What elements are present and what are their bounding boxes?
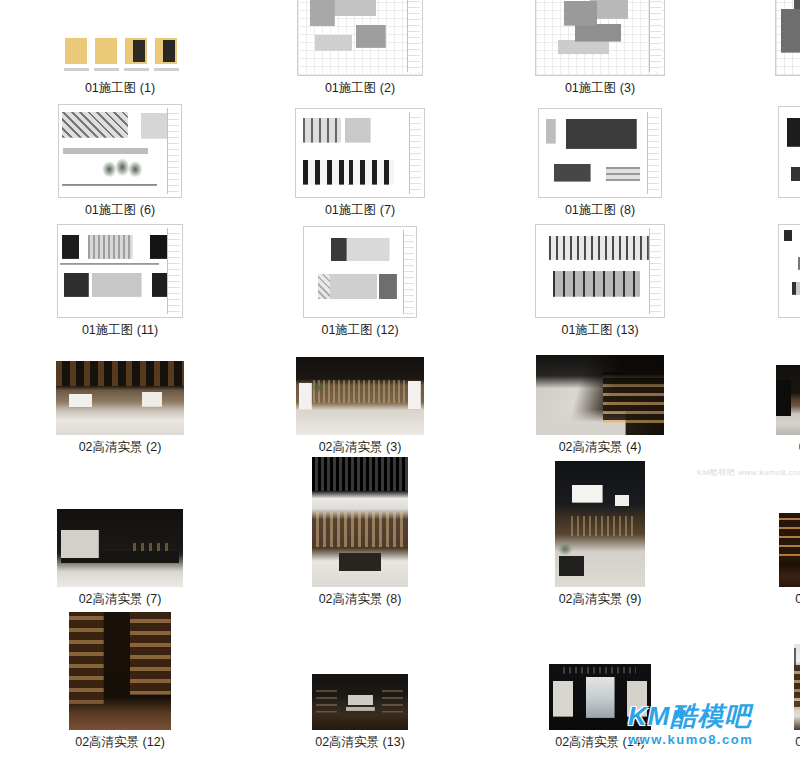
thumbnail-photo[interactable]: [296, 357, 424, 435]
file-label: 02高清实景 (7): [79, 592, 162, 607]
thumbnail-photo[interactable]: [56, 361, 184, 435]
file-label: 01施工图 (12): [321, 323, 398, 338]
file-item[interactable]: 01施工图 (7): [280, 129, 440, 219]
file-item[interactable]: 01施工图 (6): [40, 129, 200, 219]
file-label: 01施工图 (2): [325, 81, 395, 96]
file-label: 01施工图 (1): [85, 81, 155, 96]
file-label: 01施工图 (6): [85, 203, 155, 218]
file-label: 01施工图 (7): [325, 203, 395, 218]
file-item[interactable]: 02高清实景 (2): [40, 371, 200, 456]
thumbnail-floor-plan[interactable]: [297, 0, 423, 76]
gallery-row: 01施工图 (6) 01施工图 (7) 01施工图 (8) 01施工图 (9) …: [0, 113, 800, 235]
file-label: 01施工图 (11): [82, 323, 158, 338]
file-item[interactable]: 01施工图 (3): [520, 16, 680, 97]
thumbnail-gallery: 01施工图 (1) 01施工图 (2) 01施工图 (3) 01施工图 (4) …: [0, 0, 800, 767]
file-item[interactable]: 02高清实景 (4): [520, 371, 680, 456]
file-label: 02高清实景 (3): [319, 440, 402, 455]
file-label: 02高清实景 (2): [79, 440, 162, 455]
file-item[interactable]: 01施工图 (13): [520, 251, 680, 339]
file-item[interactable]: 02高清实景 (8): [280, 488, 440, 608]
thumbnail-photo[interactable]: [312, 457, 408, 587]
file-item[interactable]: 02高清实景 (12): [40, 640, 200, 751]
file-item[interactable]: 02高清实景 (9): [520, 488, 680, 608]
thumbnail-floor-plan[interactable]: [535, 0, 665, 76]
file-item[interactable]: 01施工图 (9): [760, 129, 800, 219]
file-label: 02高清实景 (15): [795, 735, 800, 750]
gallery-row: 01施工图 (11) 01施工图 (12) 01施工图 (13) 01施工图 (…: [0, 235, 800, 355]
watermark-url-text: www.kumo8.com: [628, 733, 753, 746]
thumbnail-dwg-icons[interactable]: [61, 30, 179, 76]
thumbnail-elevation[interactable]: [295, 108, 425, 198]
file-label: 01施工图 (8): [565, 203, 635, 218]
thumbnail-photo[interactable]: [69, 612, 171, 730]
thumbnail-elevation[interactable]: [778, 106, 800, 198]
thumbnail-elevation[interactable]: [58, 104, 182, 198]
file-item[interactable]: 02高清实景 (13): [280, 640, 440, 751]
thumbnail-photo[interactable]: [776, 365, 800, 435]
file-item[interactable]: 02高清实景 (3): [280, 371, 440, 456]
site-watermark: KM酷模吧 www.kumo8.com: [628, 703, 753, 746]
file-item[interactable]: 02高清实景 (15): [760, 640, 800, 751]
thumbnail-photo[interactable]: [779, 513, 800, 587]
file-label: 02高清实景 (13): [315, 735, 405, 750]
file-label: 02高清实景 (8): [319, 592, 402, 607]
file-item[interactable]: 02高清实景 (7): [40, 488, 200, 608]
gallery-row: 01施工图 (1) 01施工图 (2) 01施工图 (3) 01施工图 (4) …: [0, 0, 800, 113]
file-label: 02高清实景 (9): [559, 592, 642, 607]
file-item[interactable]: 02高清实景 (5): [760, 371, 800, 456]
thumbnail-photo[interactable]: [555, 461, 645, 587]
thumbnail-floor-plan[interactable]: [775, 0, 800, 76]
file-item[interactable]: 01施工图 (8): [520, 129, 680, 219]
thumbnail-photo[interactable]: [536, 355, 664, 435]
file-item[interactable]: 01施工图 (2): [280, 16, 440, 97]
thumbnail-elevation[interactable]: [538, 108, 662, 198]
thumbnail-photo[interactable]: [57, 509, 183, 587]
file-label: 02高清实景 (10): [795, 592, 800, 607]
thumbnail-elevation[interactable]: [57, 224, 183, 318]
watermark-logo-text: KM酷模吧: [628, 703, 753, 729]
file-label: 02高清实景 (4): [559, 440, 642, 455]
file-item[interactable]: 01施工图 (14): [760, 251, 800, 339]
file-item[interactable]: 01施工图 (4): [760, 16, 800, 97]
file-item[interactable]: 01施工图 (12): [280, 251, 440, 339]
file-item[interactable]: 02高清实景 (10): [760, 488, 800, 608]
gallery-row: 02高清实景 (2) 02高清实景 (3) 02高清实景 (4) 02高清实景 …: [0, 355, 800, 472]
thumbnail-elevation[interactable]: [303, 226, 417, 318]
file-label: 02高清实景 (12): [75, 735, 165, 750]
thumbnail-photo[interactable]: [312, 674, 408, 730]
thumbnail-elevation[interactable]: [778, 224, 800, 318]
thumbnail-elevation[interactable]: [535, 224, 665, 318]
faint-watermark: KM酷模吧 www.kumo8.com: [697, 467, 800, 478]
file-label: 01施工图 (3): [565, 81, 635, 96]
file-item[interactable]: 01施工图 (11): [40, 251, 200, 339]
file-item[interactable]: 01施工图 (1): [40, 16, 200, 97]
file-label: 01施工图 (13): [561, 323, 638, 338]
gallery-row: 02高清实景 (7) 02高清实景 (8) 02高清实景 (9) 02高清实景 …: [0, 472, 800, 624]
thumbnail-photo[interactable]: [794, 644, 800, 730]
